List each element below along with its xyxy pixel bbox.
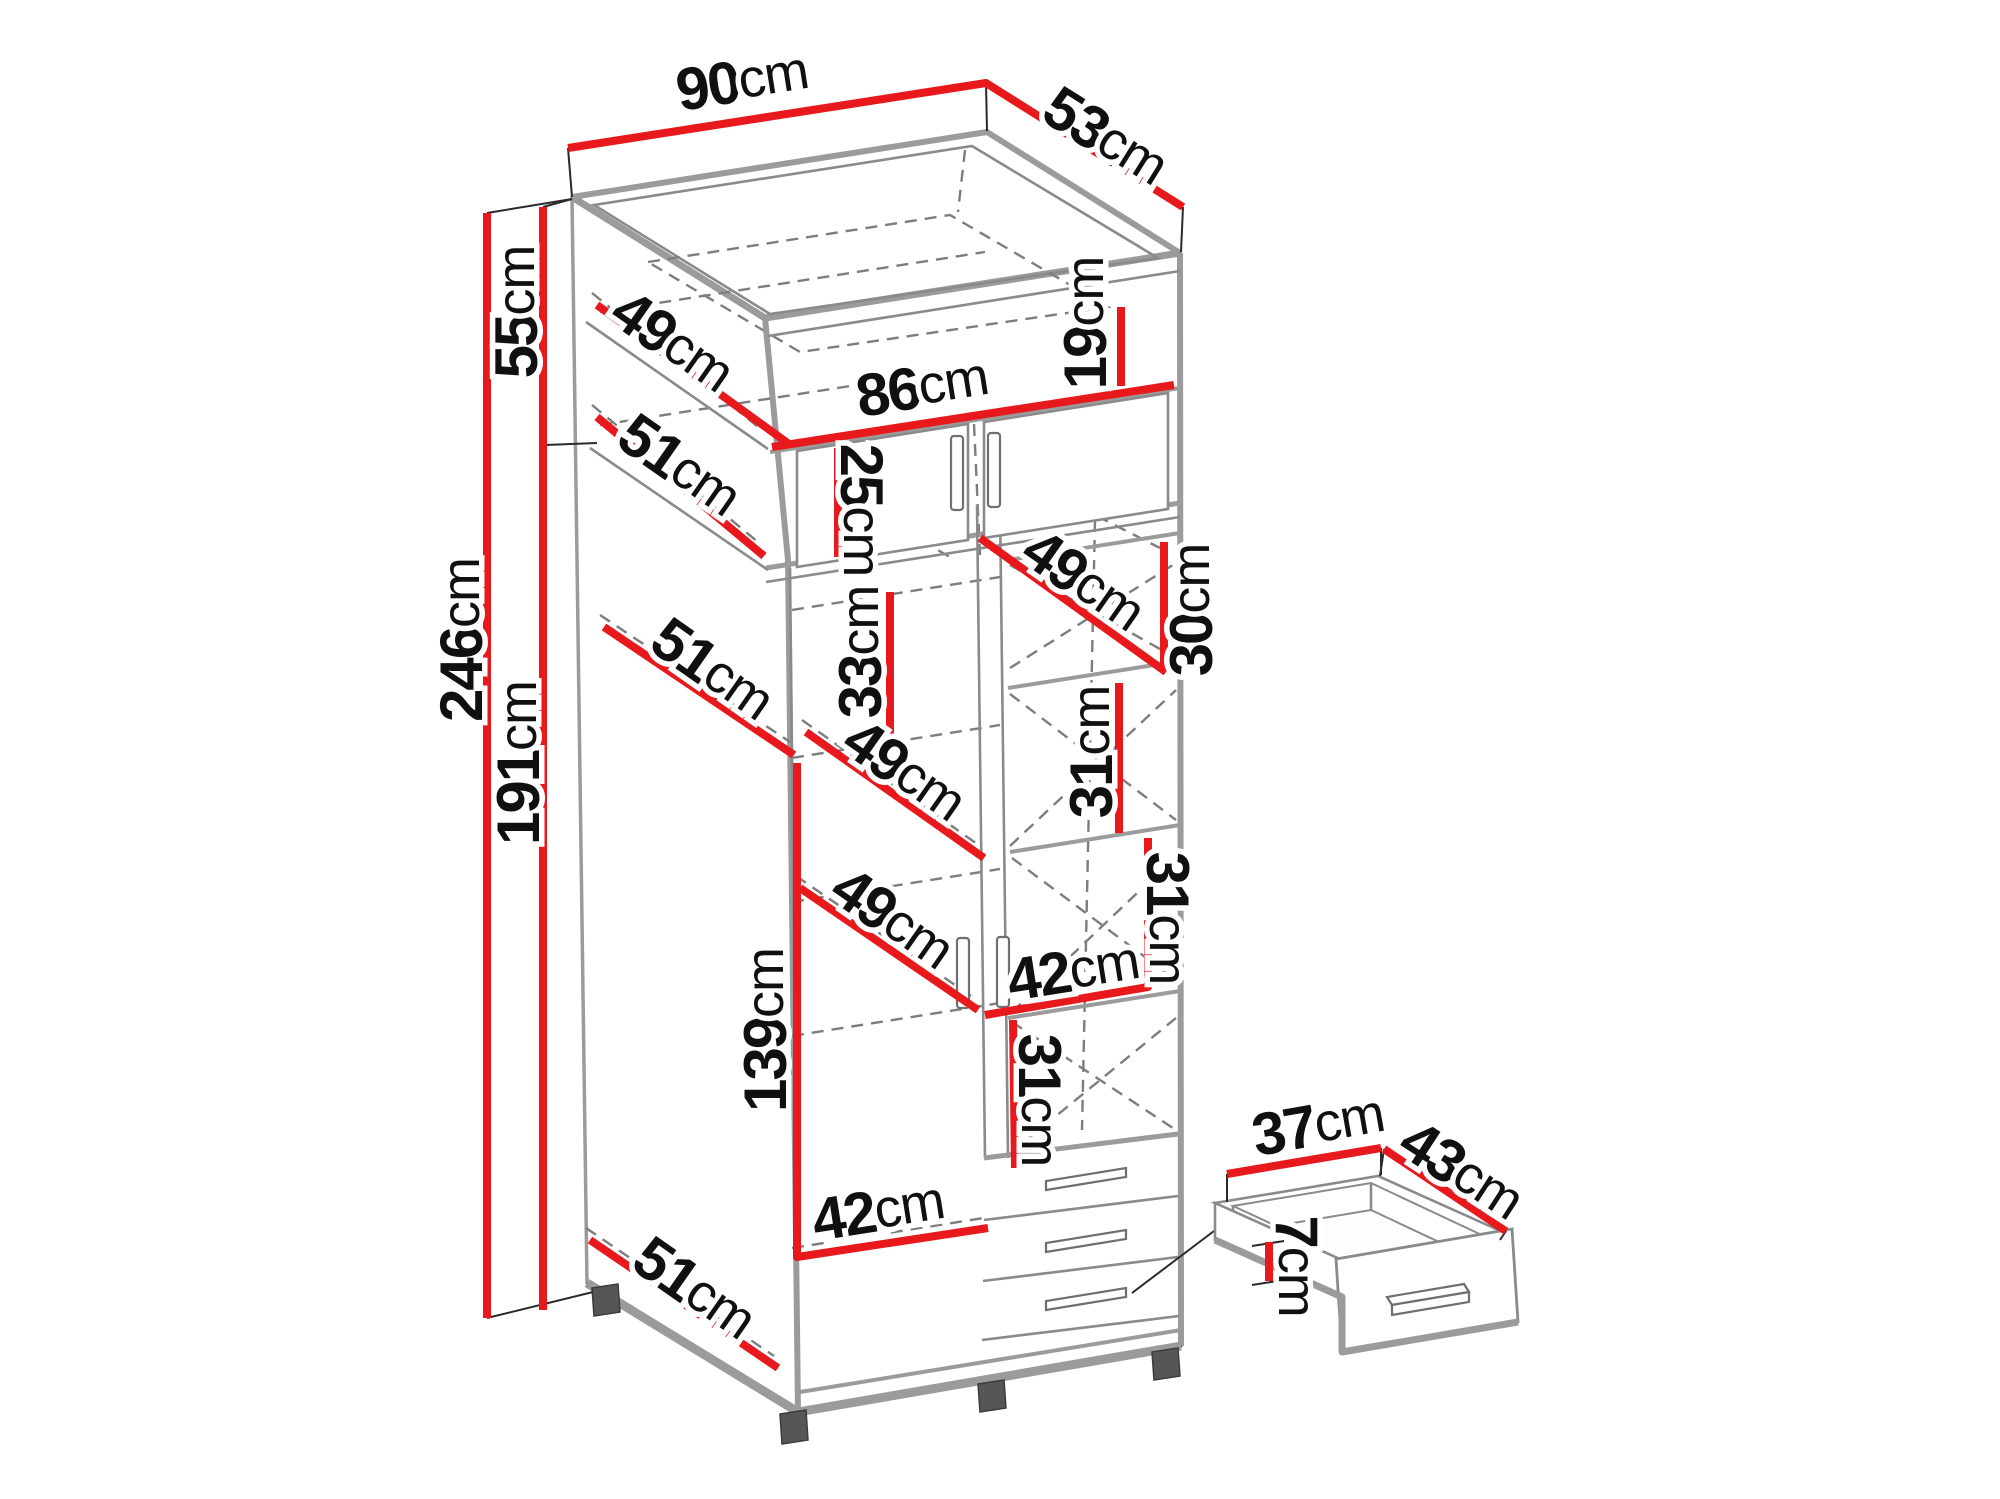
dim-label-top-tray-height: 19cm [1052,257,1119,390]
foot-near [780,1410,808,1444]
dim-label-gap-31b: 31cm [1135,852,1202,985]
dim-label-hanging-height: 139cm [732,948,799,1112]
dim-label-gap-33: 33cm [827,586,894,719]
foot-front-mid [978,1380,1006,1412]
dim-label-gap-31c: 31cm [1007,1034,1074,1167]
dim-label-top-section-height: 55cm [483,246,550,379]
diagram-canvas: 90cm53cm55cm246cm191cm49cm51cm86cm19cm25… [0,0,2000,1499]
dim-label-drawer-height: 7cm [1264,1215,1331,1316]
dim-label-drawer-width: 37cm [1247,1079,1389,1168]
top-door-right-handle [988,433,1000,507]
dim-label-gap-30: 30cm [1158,544,1225,677]
dim-label-top-door-height: 25cm [829,444,896,577]
foot-front-right [1152,1348,1180,1380]
dim-label-lower-section-height: 191cm [485,681,552,845]
dim-label-height-total: 246cm [428,558,495,722]
foot-back-left [592,1284,620,1316]
right-front-edge [1180,253,1181,1346]
top-door-left-handle [951,436,963,510]
wardrobe-dimension-diagram: 90cm53cm55cm246cm191cm49cm51cm86cm19cm25… [0,0,2000,1499]
dim-label-gap-31a: 31cm [1058,686,1125,819]
